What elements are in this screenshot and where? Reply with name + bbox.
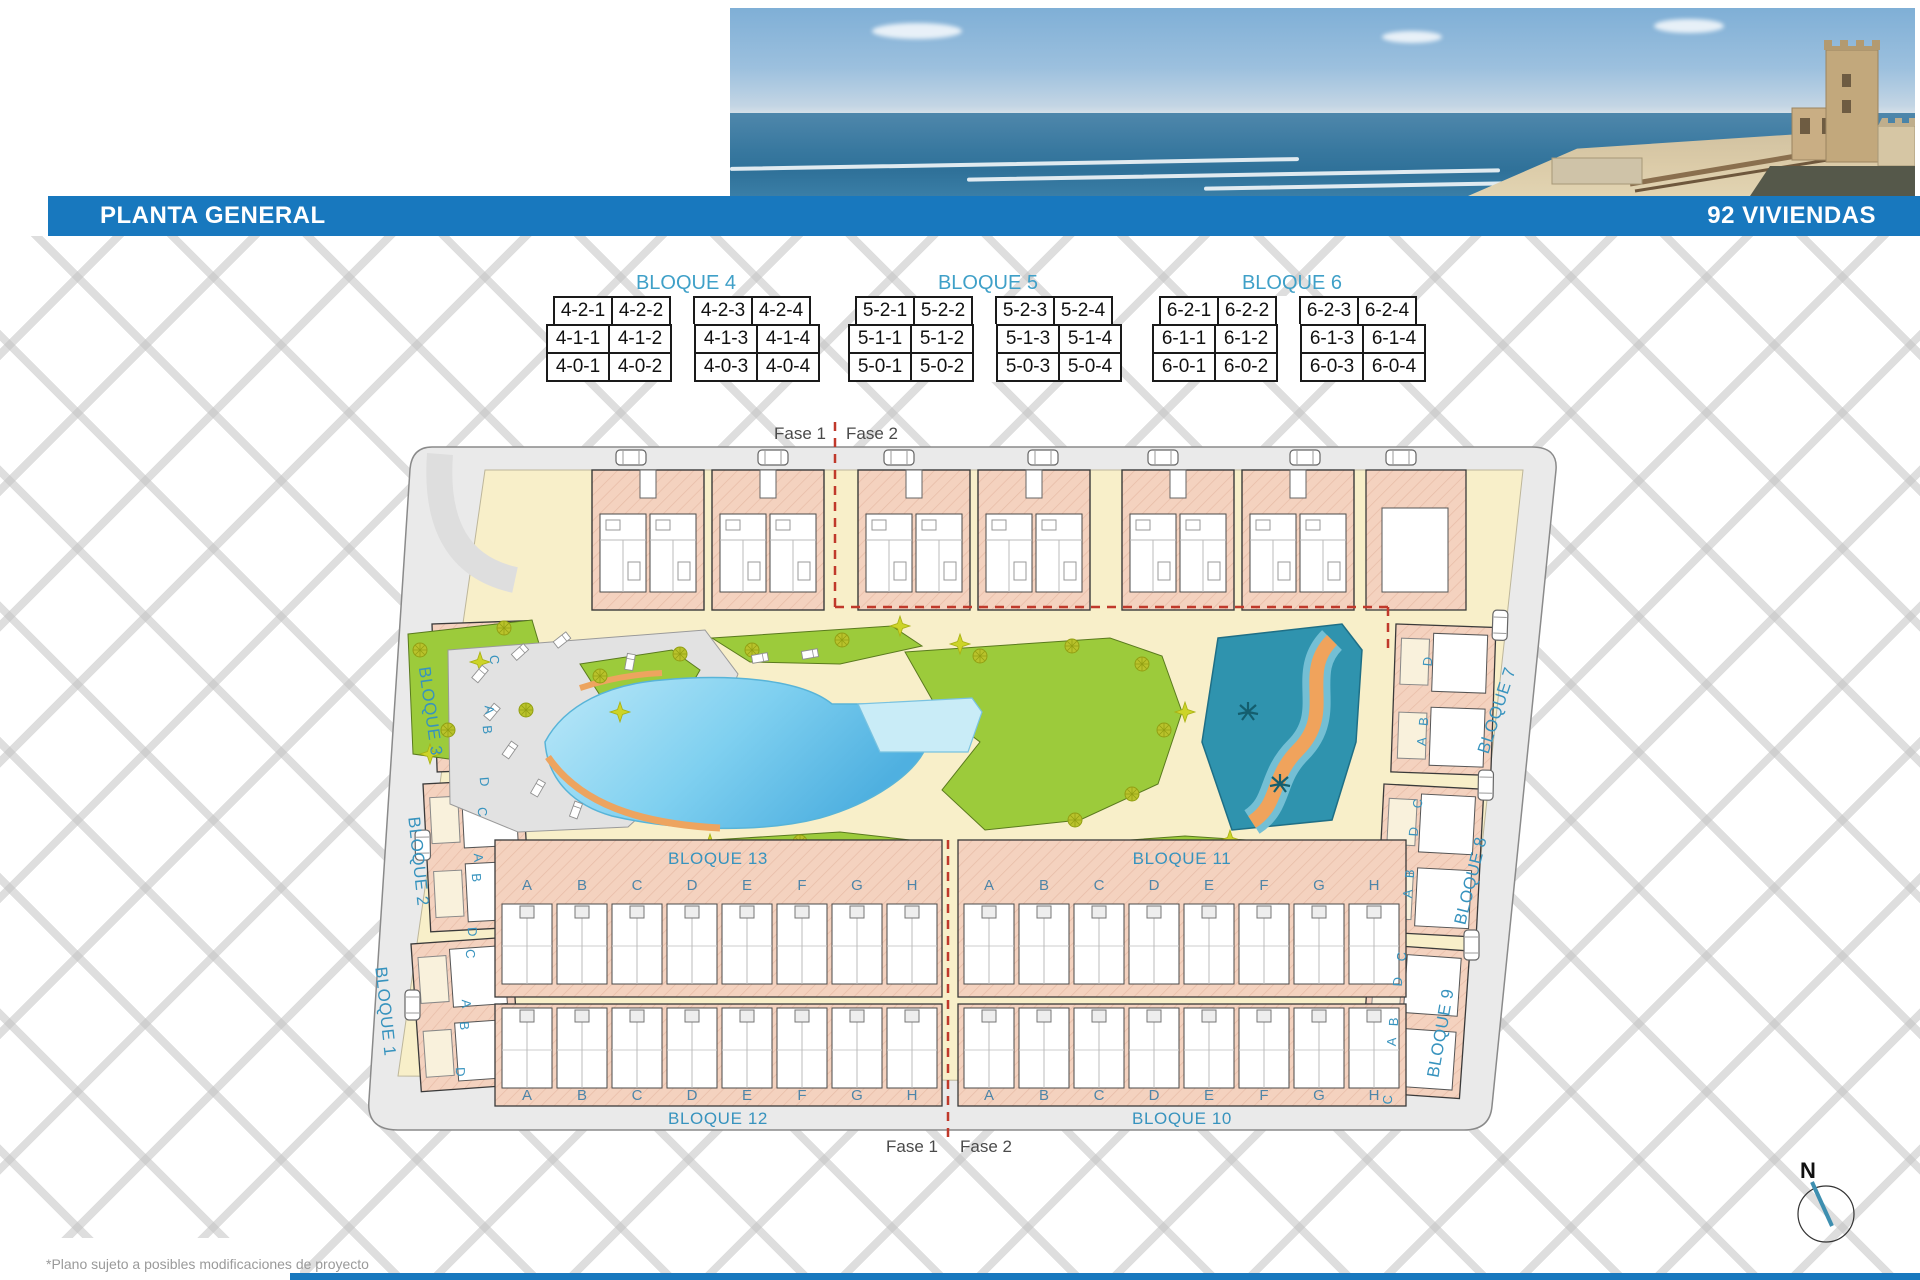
svg-text:E: E: [1204, 877, 1214, 894]
fase1-label-bottom: Fase 1: [886, 1137, 938, 1156]
svg-text:C: C: [1380, 1095, 1395, 1105]
fase2-label-top: Fase 2: [846, 424, 898, 443]
svg-text:F: F: [797, 877, 806, 894]
svg-text:E: E: [742, 877, 752, 894]
svg-text:C: C: [1394, 951, 1410, 961]
svg-text:D: D: [1406, 826, 1422, 836]
svg-text:C: C: [1410, 798, 1426, 809]
page-title: PLANTA GENERAL: [100, 202, 326, 230]
unit-table-bloque-6: BLOQUE 6 6-2-16-2-26-2-36-2-4 6-1-16-1-2…: [1152, 272, 1432, 382]
north-compass: N: [1770, 1140, 1890, 1265]
svg-text:E: E: [742, 1087, 752, 1104]
svg-text:H: H: [907, 877, 918, 894]
table-gap: [1277, 296, 1299, 326]
unit-cell: 6-1-1: [1154, 326, 1214, 352]
unit-cell: 5-2-1: [857, 298, 913, 324]
svg-text:A: A: [482, 705, 498, 715]
unit-cell: 5-2-4: [1053, 298, 1111, 324]
unit-cell: 6-2-1: [1161, 298, 1217, 324]
unit-cell: 4-0-2: [608, 354, 670, 380]
svg-text:E: E: [1204, 1087, 1214, 1104]
svg-text:F: F: [1259, 877, 1268, 894]
unit-cell: 4-1-4: [756, 326, 818, 352]
svg-text:A: A: [984, 1087, 994, 1104]
svg-text:B: B: [577, 1087, 587, 1104]
unit-cell: 6-0-1: [1154, 354, 1214, 380]
unit-cell: 6-1-4: [1362, 326, 1424, 352]
label-bloque-10: BLOQUE 10: [1132, 1109, 1232, 1128]
svg-text:C: C: [1094, 1087, 1105, 1104]
unit-cell: 5-1-3: [998, 326, 1058, 352]
svg-text:B: B: [1039, 877, 1049, 894]
table-title: BLOQUE 6: [1152, 272, 1432, 298]
svg-text:B: B: [1386, 1017, 1401, 1026]
unit-table-bloque-5: BLOQUE 5 5-2-15-2-25-2-35-2-4 5-1-15-1-2…: [848, 272, 1128, 382]
unit-cell: 4-2-4: [751, 298, 809, 324]
disclaimer-footnote: *Plano sujeto a posibles modificaciones …: [46, 1256, 369, 1272]
unit-cell: 6-2-4: [1357, 298, 1415, 324]
svg-text:D: D: [1420, 656, 1436, 667]
unit-cell: 5-0-4: [1058, 354, 1120, 380]
unit-cell: 6-0-3: [1302, 354, 1362, 380]
svg-text:A: A: [522, 1087, 532, 1104]
unit-cell: 5-2-2: [913, 298, 971, 324]
svg-text:B: B: [577, 877, 587, 894]
svg-text:D: D: [465, 926, 481, 936]
units-count-badge: 92 VIVIENDAS: [1707, 202, 1876, 230]
unit-cell: 4-0-3: [696, 354, 756, 380]
unit-cell: 5-0-2: [910, 354, 972, 380]
svg-text:A: A: [1414, 736, 1430, 746]
unit-cell: 5-0-1: [850, 354, 910, 380]
svg-text:D: D: [687, 1087, 698, 1104]
unit-cell: 4-0-4: [756, 354, 818, 380]
unit-cell: 4-1-3: [696, 326, 756, 352]
bloque-4-5-6-buildings: [592, 470, 1466, 610]
svg-text:C: C: [1094, 877, 1105, 894]
svg-text:A: A: [984, 877, 994, 894]
table-gap: [974, 324, 996, 354]
splash-river-feature: [1202, 624, 1362, 830]
unit-cell: 4-2-1: [555, 298, 611, 324]
watchtower-icon: [1750, 40, 1915, 196]
svg-text:D: D: [687, 877, 698, 894]
unit-cell: 6-0-4: [1362, 354, 1424, 380]
svg-text:F: F: [797, 1087, 806, 1104]
planta-general-page: PLANTA GENERAL 92 VIVIENDAS BLOQUE 4 4-2…: [0, 0, 1920, 1280]
unit-cell: 4-0-1: [548, 354, 608, 380]
table-gap: [1278, 352, 1300, 382]
unit-cell: 4-2-2: [611, 298, 669, 324]
svg-text:C: C: [487, 654, 503, 665]
svg-text:H: H: [1369, 1087, 1380, 1104]
unit-table-bloque-4: BLOQUE 4 4-2-14-2-24-2-34-2-4 4-1-14-1-2…: [546, 272, 826, 382]
bloque-10-building: [958, 1004, 1406, 1106]
bloque-12-building: [495, 1004, 942, 1106]
svg-text:D: D: [1149, 877, 1160, 894]
unit-cell: 5-2-3: [997, 298, 1053, 324]
unit-cell: 4-1-1: [548, 326, 608, 352]
unit-cell: 6-1-2: [1214, 326, 1276, 352]
label-bloque-12: BLOQUE 12: [668, 1109, 768, 1128]
svg-text:H: H: [907, 1087, 918, 1104]
svg-text:G: G: [1313, 1087, 1325, 1104]
svg-text:C: C: [463, 949, 478, 959]
unit-cell: 6-2-3: [1301, 298, 1357, 324]
svg-text:G: G: [851, 1087, 863, 1104]
title-bar: PLANTA GENERAL 92 VIVIENDAS: [48, 196, 1920, 236]
compass-needle: [1812, 1182, 1832, 1226]
svg-text:G: G: [851, 877, 863, 894]
svg-text:B: B: [480, 725, 496, 735]
table-gap: [973, 296, 995, 326]
svg-text:C: C: [632, 877, 643, 894]
unit-cell: 5-1-4: [1058, 326, 1120, 352]
fase2-label-bottom: Fase 2: [960, 1137, 1012, 1156]
svg-text:B: B: [457, 1021, 472, 1030]
label-bloque-13: BLOQUE 13: [668, 849, 768, 868]
compass-north-letter: N: [1800, 1158, 1816, 1183]
svg-text:A: A: [1384, 1037, 1399, 1047]
bottom-blue-strip: [290, 1273, 1920, 1280]
svg-text:F: F: [1259, 1087, 1268, 1104]
svg-text:A: A: [522, 877, 532, 894]
table-gap: [974, 352, 996, 382]
unit-cell: 4-2-3: [695, 298, 751, 324]
svg-text:D: D: [1149, 1087, 1160, 1104]
fase1-label-top: Fase 1: [774, 424, 826, 443]
svg-text:D: D: [1390, 977, 1405, 987]
svg-text:B: B: [1416, 717, 1432, 727]
unit-cell: 6-2-2: [1217, 298, 1275, 324]
unit-cell: 4-1-2: [608, 326, 670, 352]
svg-text:A: A: [459, 999, 474, 1009]
beach-photo: [730, 8, 1915, 196]
table-gap: [1278, 324, 1300, 354]
svg-text:D: D: [453, 1067, 468, 1077]
table-title: BLOQUE 5: [848, 272, 1128, 298]
table-gap: [672, 352, 694, 382]
table-gap: [672, 324, 694, 354]
svg-text:B: B: [1039, 1087, 1049, 1104]
unit-cell: 5-0-3: [998, 354, 1058, 380]
unit-cell: 6-1-3: [1302, 326, 1362, 352]
svg-text:A: A: [1400, 889, 1416, 899]
tower-illustration: [730, 8, 1915, 196]
label-bloque-11: BLOQUE 11: [1133, 849, 1232, 868]
svg-text:D: D: [477, 776, 493, 787]
svg-text:B: B: [1402, 869, 1418, 879]
unit-cell: 6-0-2: [1214, 354, 1276, 380]
table-gap: [671, 296, 693, 326]
unit-cell: 5-1-1: [850, 326, 910, 352]
svg-text:H: H: [1369, 877, 1380, 894]
table-title: BLOQUE 4: [546, 272, 826, 298]
svg-text:G: G: [1313, 877, 1325, 894]
unit-cell: 5-1-2: [910, 326, 972, 352]
svg-text:C: C: [632, 1087, 643, 1104]
svg-text:B: B: [469, 873, 485, 883]
site-plan: AB CD EF GH AB CD EF GH AB CD EF GH AB C…: [280, 412, 1640, 1172]
svg-text:A: A: [471, 853, 487, 863]
svg-text:C: C: [475, 806, 491, 816]
